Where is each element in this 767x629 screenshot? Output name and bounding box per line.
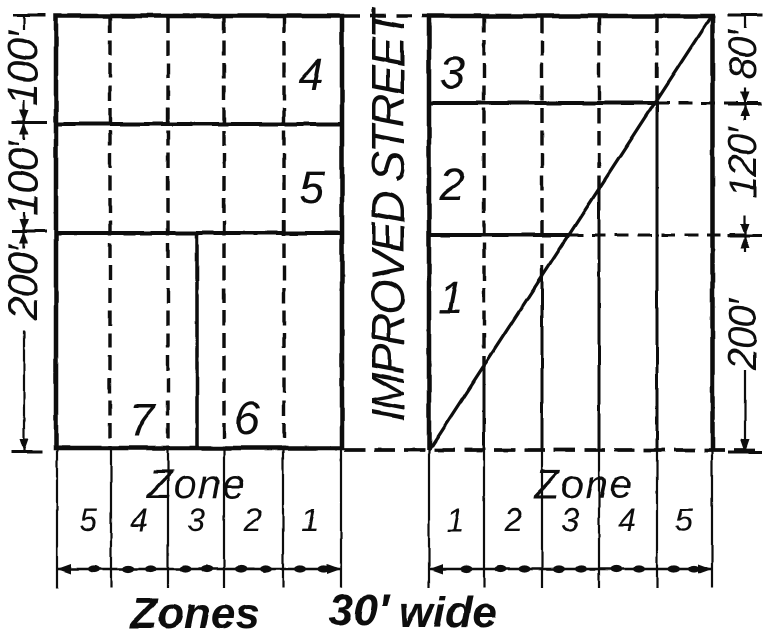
svg-text:1: 1 [446, 502, 464, 538]
svg-text:7: 7 [129, 394, 156, 446]
svg-text:3: 3 [561, 502, 579, 538]
svg-text:wide: wide [399, 588, 497, 629]
svg-text:120′: 120′ [721, 125, 765, 198]
svg-text:200′: 200′ [0, 243, 46, 321]
svg-text:80′: 80′ [721, 28, 765, 79]
svg-text:3: 3 [439, 47, 464, 98]
svg-text:4: 4 [298, 49, 323, 100]
svg-text:2: 2 [503, 502, 522, 538]
svg-text:5: 5 [79, 502, 97, 538]
svg-text:4: 4 [618, 502, 636, 538]
svg-text:2: 2 [243, 502, 262, 538]
svg-text:IMPROVED STREET: IMPROVED STREET [362, 7, 414, 422]
svg-text:1: 1 [301, 502, 319, 538]
svg-text:5: 5 [299, 162, 325, 213]
svg-text:3: 3 [187, 502, 205, 538]
svg-text:Zone: Zone [146, 461, 246, 507]
svg-text:1: 1 [438, 272, 463, 323]
svg-text:6: 6 [234, 392, 260, 444]
svg-text:2: 2 [438, 159, 464, 210]
svg-text:200′: 200′ [721, 297, 765, 371]
svg-text:Zone: Zone [533, 461, 633, 507]
svg-text:5: 5 [675, 502, 693, 538]
svg-text:4: 4 [130, 502, 148, 538]
svg-text:100′: 100′ [0, 29, 46, 106]
svg-text:Zones: Zones [128, 589, 260, 629]
svg-text:30′: 30′ [329, 586, 391, 629]
svg-text:100′: 100′ [0, 139, 46, 216]
